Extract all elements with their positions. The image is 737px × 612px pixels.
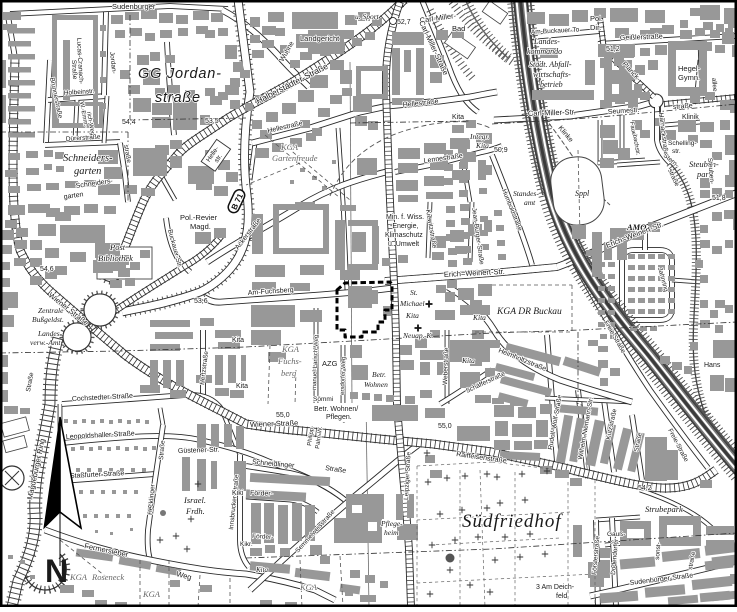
svg-text:Kita: Kita [475, 141, 489, 150]
svg-text:Landes-: Landes- [37, 329, 63, 338]
svg-text:Bußgeldst.: Bußgeldst. [32, 315, 64, 324]
svg-text:Landgericht: Landgericht [300, 34, 340, 43]
svg-text:Wohnen: Wohnen [364, 380, 388, 389]
svg-text:Schelling-: Schelling- [668, 140, 697, 147]
svg-text:verw.-Amt: verw.-Amt [30, 338, 61, 347]
svg-text:Betr.: Betr. [372, 370, 386, 379]
svg-text:straße: straße [155, 90, 201, 106]
svg-text:AZG: AZG [322, 359, 338, 368]
svg-text:Pflegen.: Pflegen. [326, 414, 352, 421]
svg-text:Kikr.: Kikr. [240, 541, 253, 548]
svg-text:Landes-: Landes- [533, 37, 560, 46]
svg-text:heim: heim [384, 528, 399, 537]
svg-text:Güstener-Str.: Güstener-Str. [178, 447, 220, 455]
svg-text:51,2: 51,2 [606, 46, 620, 53]
svg-text:KGA: KGA [299, 582, 318, 592]
svg-text:53,5: 53,5 [205, 118, 219, 125]
svg-text:52,7: 52,7 [397, 19, 411, 26]
svg-text:Fuchs-: Fuchs- [277, 356, 302, 366]
svg-text:Gartenfreude: Gartenfreude [272, 153, 318, 163]
svg-text:KGA: KGA [69, 572, 88, 582]
svg-text:Integr.: Integr. [469, 132, 489, 141]
svg-text:Min. f. Wiss.: Min. f. Wiss. [386, 214, 424, 221]
svg-text:betrieb: betrieb [540, 80, 563, 89]
svg-text:Sudenburger: Sudenburger [112, 2, 156, 11]
svg-text:Dir.: Dir. [590, 23, 601, 32]
svg-text:Geißlerstraße: Geißlerstraße [620, 34, 663, 42]
svg-text:Förder-: Förder- [252, 533, 274, 541]
svg-text:Hans: Hans [704, 362, 721, 369]
svg-text:KGA DR Buckau: KGA DR Buckau [496, 307, 562, 317]
svg-text:Kiki: Kiki [232, 490, 244, 497]
svg-text:feld: feld [556, 593, 567, 600]
svg-text:allee: allee [710, 78, 718, 93]
svg-text:Kita: Kita [236, 383, 248, 390]
svg-text:str.: str. [672, 148, 681, 155]
svg-text:Betr. Wohnen/: Betr. Wohnen/ [314, 406, 358, 413]
svg-text:Frdh.: Frdh. [185, 506, 205, 516]
svg-text:amt: amt [524, 198, 536, 207]
svg-text:Michael: Michael [399, 299, 425, 308]
svg-text:Hegel-: Hegel- [678, 64, 701, 73]
svg-text:Weberstraße: Weberstraße [442, 347, 450, 385]
svg-text:55,0: 55,0 [438, 423, 452, 430]
svg-text:Sömmi: Sömmi [313, 396, 333, 403]
svg-text:straße: straße [673, 103, 693, 111]
svg-text:Schneiders-: Schneiders- [63, 153, 113, 164]
svg-text:3 Am Deich-: 3 Am Deich- [536, 584, 575, 591]
svg-text:Wiener Straße: Wiener Straße [250, 418, 299, 429]
svg-text:53,6: 53,6 [194, 298, 208, 305]
svg-text:Straße: Straße [70, 60, 78, 80]
svg-text:54,4: 54,4 [122, 119, 136, 126]
svg-text:wirtschafts-: wirtschafts- [533, 70, 571, 79]
svg-text:Carl-Miller-Str.: Carl-Miller-Str. [528, 107, 576, 118]
svg-text:Sppl: Sppl [575, 189, 590, 198]
svg-text:Förder-: Förder- [250, 490, 274, 498]
svg-text:Kita: Kita [461, 356, 475, 365]
svg-text:Kita: Kita [452, 114, 464, 121]
svg-text:berg: berg [281, 368, 296, 378]
svg-text:N: N [45, 553, 68, 589]
svg-text:Israel.: Israel. [183, 495, 206, 505]
svg-text:Kita: Kita [232, 337, 244, 344]
svg-text:KGA: KGA [142, 589, 161, 599]
svg-text:Standes-: Standes- [513, 189, 539, 198]
svg-text:Kita: Kita [472, 313, 486, 322]
svg-text:51,8: 51,8 [712, 195, 726, 202]
svg-text:55,0: 55,0 [276, 412, 290, 419]
svg-text:Roseneck: Roseneck [91, 572, 124, 582]
svg-text:Bad: Bad [452, 24, 465, 33]
svg-text:Kita: Kita [255, 566, 269, 574]
svg-text:Südfriedhof: Südfriedhof [462, 511, 563, 532]
svg-text:Klimaschutz: Klimaschutz [385, 232, 423, 239]
svg-text:Bibliothek: Bibliothek [98, 253, 133, 263]
svg-text:Neuap. K.: Neuap. K. [402, 331, 433, 340]
svg-text:garten: garten [74, 166, 101, 177]
svg-text:u. Sport: u. Sport [355, 12, 380, 21]
svg-text:Magd.: Magd. [190, 222, 211, 231]
svg-text:54,2: 54,2 [638, 485, 652, 492]
svg-text:St.: St. [410, 288, 418, 297]
svg-text:Gymn.: Gymn. [678, 73, 700, 82]
svg-text:Pol.: Pol. [590, 14, 603, 23]
svg-text:KGA: KGA [280, 142, 299, 152]
svg-text:54,6: 54,6 [40, 266, 54, 273]
svg-text:u. Umwelt: u. Umwelt [388, 241, 419, 248]
svg-text:kommando: kommando [527, 47, 562, 56]
svg-text:Pol.-Revier: Pol.-Revier [180, 213, 218, 222]
svg-text:Städt. Abfall-: Städt. Abfall- [529, 60, 572, 69]
svg-text:Klinik: Klinik [682, 114, 699, 121]
svg-text:50,9: 50,9 [494, 147, 508, 154]
svg-text:KGA: KGA [281, 344, 300, 354]
svg-text:GG Jordan-: GG Jordan- [138, 66, 222, 82]
svg-text:-Energie,: -Energie, [390, 223, 418, 230]
svg-text:Kita: Kita [405, 311, 419, 320]
svg-text:Pflege-: Pflege- [380, 519, 403, 528]
svg-text:Post: Post [109, 242, 126, 252]
svg-text:Strubepark: Strubepark [645, 504, 683, 514]
svg-text:Gauß-: Gauß- [607, 531, 625, 538]
